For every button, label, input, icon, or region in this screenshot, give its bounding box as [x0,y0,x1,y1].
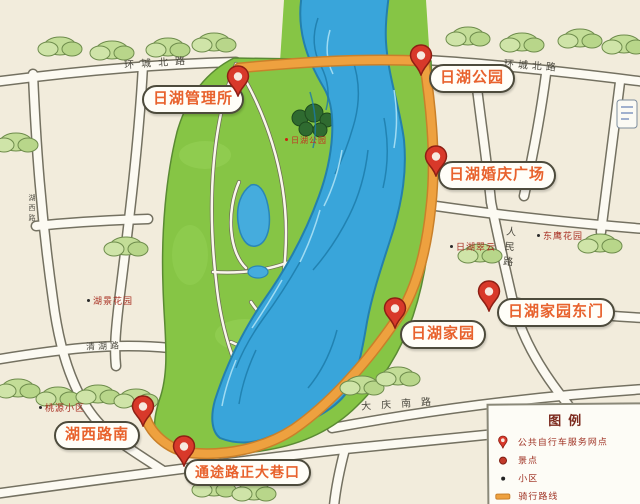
place-taoyuan-community: 桃源小区 [39,401,85,414]
legend-label: 骑行路线 [518,489,558,502]
legend-title: 图例 [495,409,640,429]
pin-icon [383,297,407,329]
legend-box: 图例 公共自行车服务网点 景点 小区 骑行路线 [487,402,640,504]
legend-label: 小区 [518,471,538,484]
legend-row-residential: 小区 [495,470,640,484]
pin-icon [172,435,196,467]
road-sign [617,100,637,128]
residential-dot-icon [39,406,42,409]
bike-station-pin-wedding-plaza [424,145,448,177]
station-label-tongtu-zhengda-alley: 通途路正大巷口 [184,459,311,486]
cycling-route-line-icon [495,493,510,499]
scenic-dot-icon [285,138,288,141]
rihu-park-bike-map: 环城北路 环城北路 清湖路 大庆南路 人民路 湖西路 湖景花园 桃源小区 日湖翠… [0,0,640,504]
bike-station-pin-east-gate [477,280,501,312]
place-label: 东鹰花园 [543,231,583,241]
place-hujing-garden: 湖景花园 [87,294,133,307]
place-label: 桃源小区 [45,403,85,413]
bike-station-pin-rihu-jiayuan [383,297,407,329]
station-label-rihu-wedding-plaza: 日湖婚庆广场 [438,161,556,190]
residential-dot-icon [495,476,510,480]
legend-row-scenic-spot: 景点 [495,452,640,466]
place-label: 日湖翠云 [456,242,496,252]
station-label-rihu-park: 日湖公园 [429,64,515,93]
pin-icon [131,395,155,427]
station-label-rihu-jiayuan-east-gate: 日湖家园东门 [497,298,615,327]
bike-station-pin-management-office [226,65,250,97]
road-label-huxi-road: 湖西路 [26,194,36,224]
scenic-spot-dot-icon [495,456,510,464]
road-label-qinghu-road: 清湖路 [86,338,122,352]
legend-label: 景点 [518,453,538,466]
bike-station-pin-huxi-road-south [131,395,155,427]
pin-icon [226,65,250,97]
pin-icon [477,280,501,312]
legend-row-cycling-route: 骑行路线 [495,488,640,502]
legend-label: 公共自行车服务网点 [518,435,608,449]
pin-icon [409,44,433,76]
station-label-huxi-road-south: 湖西路南 [54,421,140,450]
residential-dot-icon [537,234,540,237]
place-dongying-garden: 东鹰花园 [537,229,583,242]
legend-row-bike-station: 公共自行车服务网点 [495,434,640,448]
bike-station-pin-tongtu-zhengda [172,435,196,467]
place-rihu-cuiyun: 日湖翠云 [450,240,496,253]
bike-station-pin-rihu-park [409,44,433,76]
residential-dot-icon [450,245,453,248]
place-label: 湖景花园 [93,296,133,306]
residential-dot-icon [87,299,90,302]
bike-station-pin-icon [495,436,510,449]
station-label-rihu-jiayuan: 日湖家园 [400,320,486,349]
place-label: 日湖公园 [291,136,327,145]
pin-icon [424,145,448,177]
place-rihu-park-scenic: 日湖公园 [285,135,327,146]
